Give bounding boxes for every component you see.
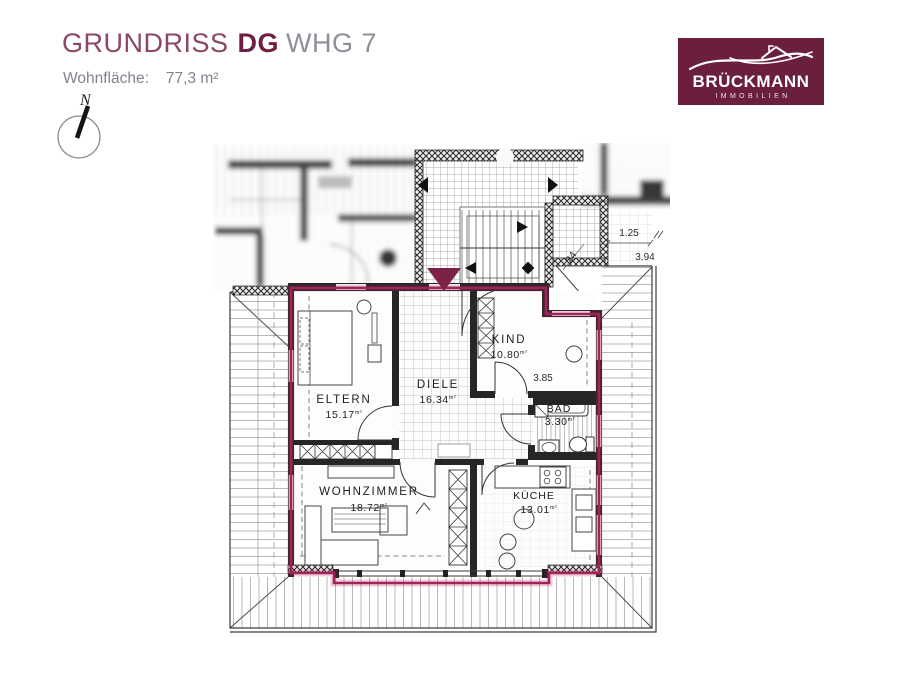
bad-name: BAD — [547, 403, 572, 415]
exterior-wall-stub — [233, 286, 288, 295]
floor-plan: ELTERN 15.17m² DIELE 16.34m² KIND 10.80m… — [210, 140, 670, 640]
compass: N — [42, 92, 132, 187]
mullion — [516, 570, 521, 577]
mullion — [400, 570, 405, 577]
diele-corridor-tiles — [470, 398, 533, 459]
roof-right — [602, 318, 652, 577]
stairwell — [415, 148, 608, 287]
wall-eltern-bottom — [294, 440, 399, 445]
house-swoosh-icon — [690, 46, 812, 69]
svg-text:KÜCHE: KÜCHE — [513, 490, 555, 502]
svg-text:KIND: KIND — [492, 334, 527, 346]
wall-kind-bottom — [528, 391, 596, 398]
roof-left — [230, 292, 288, 577]
wall-corridor-kueche — [516, 459, 528, 465]
kueche-unit: m² — [550, 505, 558, 511]
doormat — [438, 444, 470, 457]
compass-needle — [77, 106, 88, 138]
wohnzimmer-name: WOHNZIMMER — [319, 486, 419, 498]
svg-text:DIELE: DIELE — [417, 379, 459, 391]
wall-opening — [496, 148, 514, 166]
wall-kind-bottom — [470, 391, 495, 398]
landing-bottom-wall — [553, 258, 605, 266]
dimension-ticks — [654, 231, 663, 238]
mullion — [443, 570, 448, 577]
living-area-label: Wohnfläche: — [63, 70, 149, 87]
title-whg: WHG 7 — [286, 28, 377, 58]
mullion — [486, 570, 491, 577]
wohnzimmer-unit: m² — [380, 503, 388, 509]
eltern-area: 15.17 — [326, 409, 355, 421]
diele-name: DIELE — [417, 379, 459, 391]
svg-text:ELTERN: ELTERN — [316, 394, 371, 406]
wohnzimmer-area: 18.72 — [351, 502, 380, 514]
diele-unit: m² — [449, 395, 457, 401]
eltern-unit: m² — [355, 410, 363, 416]
title-dg: DG — [238, 28, 280, 58]
logo-brand-text: BRÜCKMANN — [693, 72, 810, 91]
kueche-name: KÜCHE — [513, 490, 555, 502]
dim-385: 3.85 — [533, 373, 553, 384]
wall-wohnzimmer-top — [435, 459, 477, 465]
kind-unit: m² — [520, 350, 528, 356]
living-area-line: Wohnfläche:77,3 m² — [63, 70, 218, 88]
page-title: GRUNDRISSDGWHG 7 — [62, 28, 377, 59]
sofa-side — [305, 506, 321, 565]
brand-logo-graphic: BRÜCKMANN IMMOBILIEN — [678, 38, 824, 105]
sideboard — [328, 466, 394, 478]
kueche-area: 13.01 — [521, 504, 550, 516]
wall-wohnzimmer-kueche — [470, 465, 477, 577]
pillow — [300, 318, 309, 344]
toilet-tank — [586, 437, 594, 452]
wall-bad-kueche — [528, 452, 602, 460]
wall-eltern-diele — [392, 291, 399, 406]
living-area-value: 77,3 m² — [166, 70, 219, 87]
compass-north-label: N — [79, 92, 92, 109]
title-grundriss: GRUNDRISS — [62, 28, 229, 58]
toilet — [570, 437, 587, 452]
logo-tagline-text: IMMOBILIEN — [715, 93, 790, 100]
eltern-name: ELTERN — [316, 394, 371, 406]
stairwell-mid-wall — [545, 203, 553, 287]
diele-floor-tiles — [399, 291, 470, 459]
sofa — [321, 540, 378, 565]
page: GRUNDRISSDGWHG 7 Wohnfläche:77,3 m² N BR… — [0, 0, 900, 675]
pillow — [300, 346, 309, 372]
kind-area: 10.80 — [491, 349, 520, 361]
neighbour-apartment-blurred — [213, 144, 419, 290]
diele-area: 16.34 — [420, 394, 449, 406]
svg-text:BAD: BAD — [547, 403, 572, 415]
stairwell-left-wall — [415, 161, 423, 287]
bad-unit: m² — [568, 417, 576, 423]
svg-text:WOHNZIMMER: WOHNZIMMER — [319, 486, 419, 498]
bad-area: 3.30 — [545, 416, 568, 428]
dim-125: 1.25 — [619, 228, 639, 239]
wall-corridor-kueche — [477, 459, 484, 465]
mullion — [357, 570, 362, 577]
kitchen-counter — [495, 466, 570, 488]
kind-name: KIND — [492, 334, 527, 346]
dim-394: 3.94 — [635, 252, 655, 263]
brand-logo: BRÜCKMANN IMMOBILIEN — [678, 38, 824, 105]
wall-wohnzimmer-top — [294, 459, 400, 465]
landing-right-wall — [600, 201, 608, 266]
